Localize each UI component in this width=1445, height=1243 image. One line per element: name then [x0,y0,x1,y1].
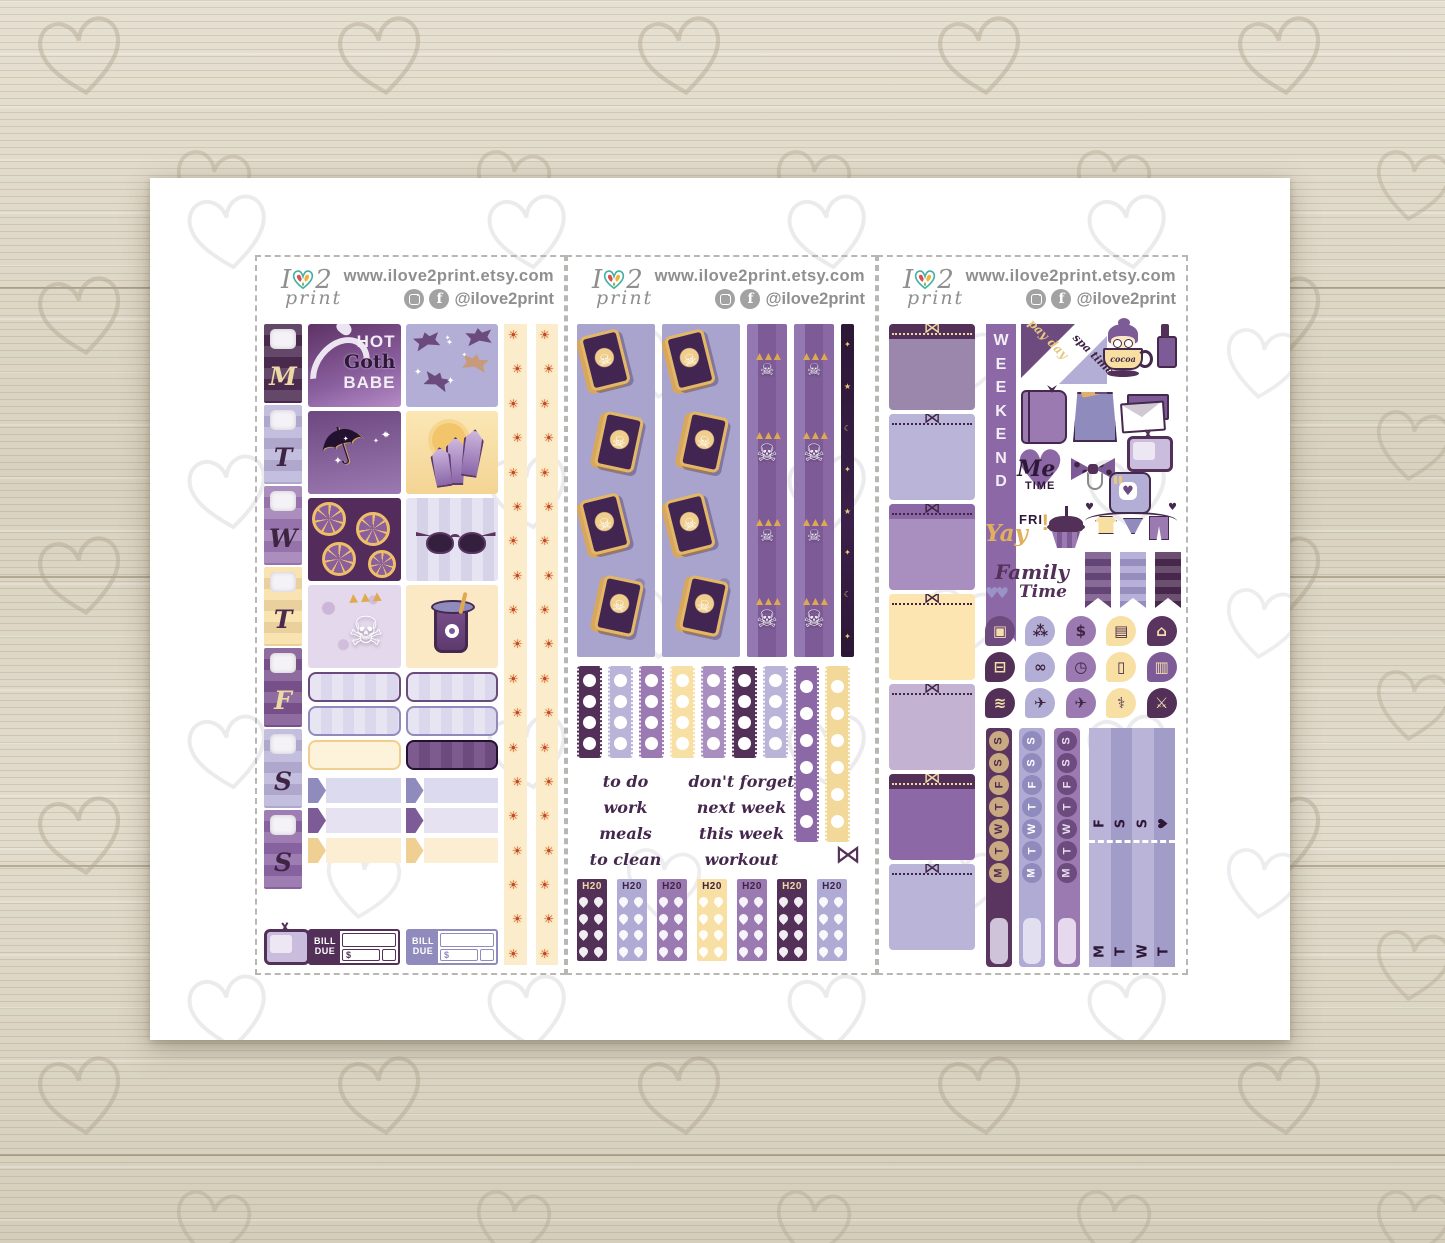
car-icon-glyph: ⊟ [994,658,1007,676]
day-dot: S [1022,753,1042,773]
day-letter: S [274,754,292,808]
week-day-strip-sticker: SSFTWTM [1054,728,1080,967]
skull-planter-item: ▲▲▲☠ [801,429,828,465]
checkbox-hole [800,680,813,693]
sheet-header: I2 print www.ilove2print.etsy.com f @ilo… [257,265,564,323]
sun-icon: ☀ [543,912,554,926]
checkbox-hole [831,788,844,801]
citrus-slice [368,550,396,578]
paw-icon-glyph: ⁂ [1033,622,1048,640]
yay-label: Yay [985,520,1028,547]
bow-icon: ⋈ [924,414,941,427]
flag-body [326,838,401,863]
weekend-letter: N [995,450,1007,468]
checkbox-hole [583,695,596,708]
skull-icon: ☠ [807,362,821,378]
water-drop-icon [592,912,605,925]
sparkle-icon: ✦ [373,436,379,445]
water-drop-icon [617,945,630,958]
sun-icon: ☀ [539,466,550,480]
sun-icon: ☀ [543,500,554,514]
day-letter: T [274,592,293,646]
sun-icon: ☀ [512,500,523,514]
social-handle: @ilove2print [454,290,554,309]
sparkle-icon: ✦ [333,455,342,467]
flag-sticker [308,838,401,863]
word-sticker: next week [674,795,809,820]
me-time-label: TIME [1025,480,1055,492]
hydration-tracker-sticker: H20 [777,879,807,961]
spray-bottle-icon-glyph: ≋ [994,694,1007,712]
checkbox-hole [707,737,720,750]
checkbox-hole [769,737,782,750]
water-drop-icon [817,945,830,958]
checkbox-hole [614,737,627,750]
flag-sticker [406,808,499,833]
day-dot: W [1022,819,1042,839]
checkbox-hole [769,695,782,708]
water-drop-icon [672,928,685,941]
skull-planter-item: ▲▲▲☠ [801,350,828,378]
day-letter: M [1061,868,1073,877]
date-tab [270,734,296,754]
bat-sunglasses-box-sticker [406,498,499,581]
checkbox-hole [738,716,751,729]
bill-field [440,933,494,947]
checklist-strips [577,666,866,761]
flag-sticker [308,808,401,833]
sun-icon: ☀ [512,775,523,789]
clothesline-sticker: ♥ ♥ [1085,502,1177,548]
day-dot: M [1022,863,1042,883]
bow-icon: ⋈ [924,324,941,337]
skull-icon: ☠ [681,350,698,371]
spray-bottle-icon: ≋ [985,688,1015,718]
water-drop-icon [792,896,805,909]
day-letter: T [993,848,1005,855]
girl-in-cocoa-cup-sticker: cocoa [1095,324,1151,380]
tarot-card: ☠ [594,574,645,637]
checklist-strip-sticker [701,666,726,758]
water-drop-icon [577,896,590,909]
skull-planter-item: ▲▲▲☠ [754,350,781,378]
h2o-label: H20 [582,881,602,892]
weekend-letter: W [993,332,1008,350]
trash-icon-glyph: ▯ [1117,658,1125,676]
tarot-card: ☠ [579,328,631,392]
day-dot: T [1022,841,1042,861]
sun-icon: ☀ [512,844,523,858]
week-column: ST [1111,728,1133,967]
sun-washi-strip: ☀☀☀☀☀☀☀☀☀☀☀☀☀☀☀☀☀☀☀ [504,324,527,965]
utensils-icon-glyph: ⚔ [1155,694,1168,712]
water-drop-icon [697,896,710,909]
water-drop-icon [617,912,630,925]
sunglasses-lens [458,532,486,554]
word-sticker: to clean [577,847,674,872]
checklist-strip-sticker [639,666,664,758]
day-letter: T [274,430,293,484]
logo-print-script: print [285,289,344,308]
water-drop-icon [832,896,845,909]
day-letter: F [993,782,1005,789]
sun-icon: ☀ [543,362,554,376]
day-letter: S [993,737,1005,744]
blank-field [990,918,1008,964]
hydration-tracker-sticker: H20 [737,879,767,961]
skull-icon: ☠ [611,432,628,452]
skull-planter-item: ▲▲▲☠ [801,516,828,544]
day-dot: W [989,819,1009,839]
flag-body [326,808,401,833]
tarot-card: ☠ [679,410,730,473]
water-drop-icon [712,912,725,925]
skull-icon: ☠ [803,441,825,465]
flag-stickers [308,778,498,863]
weekend-day-letter: S [1135,819,1150,828]
water-drop-icon [592,896,605,909]
flag-body [326,778,401,803]
flag-tip [406,838,424,863]
half-box-sticker [406,740,499,770]
sun-icon: ☀ [508,947,519,961]
sparkle-icon: ✦ [446,337,453,347]
sun-icon: ☀ [512,637,523,651]
checklist-strip-sticker [608,666,633,758]
checkbox-hole [831,734,844,747]
skull-icon: ☠ [756,607,778,631]
family-time-sticker: Family Time ♥♥ [985,560,1063,608]
checkbox-hole [645,695,658,708]
citrus-slice [322,542,356,576]
ilove2print-logo: I2 print [592,267,655,323]
sparkle-icon: ✦ [461,351,467,359]
water-drop-icon [672,896,685,909]
day-letter: S [1026,759,1038,766]
pennant-flag-sticker [1085,552,1111,608]
weekend-day-letter: S [1114,819,1129,828]
checkbox-hole [738,695,751,708]
water-drop-icon [737,912,750,925]
day-letter: S [1061,759,1073,766]
sun-icon: ☀ [508,534,519,548]
tarot-card: ☠ [664,328,716,392]
sun-icon: ☀ [508,397,519,411]
checklist-strip-sticker [732,666,757,758]
tarot-card: ☠ [594,410,645,473]
tarot-card: ☠ [579,492,631,556]
checkbox-hole [769,674,782,687]
date-cover-sticker: T [264,405,302,484]
water-drop-icon [632,912,645,925]
paw-icon: ⁂ [1025,616,1055,646]
word-sticker: meals [577,821,674,846]
sun-icon: ☀ [508,672,519,686]
heart-icon: ♥ [1085,502,1094,513]
word-sticker: to do [577,769,674,794]
instagram-icon [404,289,424,309]
celestial-washi-strip: ✦★☾✦★✦☾✦ [841,324,854,657]
water-drop-icon [632,928,645,941]
car-icon: ⊟ [985,652,1015,682]
sun-icon: ☀ [539,809,550,823]
star-icon: ★ [844,507,851,516]
checklist-strip-sticker [794,666,819,842]
sun-icon: ☀ [543,775,554,789]
water-drop-icon [832,945,845,958]
water-drop-icon [712,928,725,941]
heart-icon: ♥ [1122,484,1134,499]
bill-due-label: BILLDUE [408,931,438,963]
friyay-sticker: FRI Yay ! [985,512,1047,554]
star-icon: ✦ [844,548,851,557]
airplane-2-icon: ✈ [1066,688,1096,718]
bow-icon: ⋈ [924,684,941,697]
tv-antenna [277,923,293,932]
week-day-strip-sticker: SSFTWTM [1019,728,1045,967]
day-dot: F [989,775,1009,795]
water-drop-icon [752,945,765,958]
water-drop-icon [817,928,830,941]
trash-icon: ▯ [1106,652,1136,682]
flag-tip [406,808,424,833]
sun-icon: ☀ [539,878,550,892]
skull-icon: ☠ [756,441,778,465]
celestial-umbrella-box-sticker: ☂ ✦✦✦✦✦ [308,411,401,494]
half-box-sticker [308,672,401,702]
cupcake-sticker [1047,506,1085,552]
sun-icon: ☀ [539,603,550,617]
dollar-icon-glyph: $ [1076,622,1086,640]
day-dot: T [1057,797,1077,817]
tarot-card: ☠ [664,492,716,556]
day-letter: T [1026,804,1038,811]
icon-sticker-grid: ▣⁂$▤⌂⊟∞◷▯▥≋✈✈⚕⚔ [985,616,1179,718]
flag-tip [308,838,326,863]
sparkle-icon: ✦ [414,367,422,378]
day-letter: S [1061,737,1073,744]
print-area: I2 print www.ilove2print.etsy.com f @ilo… [255,255,1190,975]
time-label: Time [1019,582,1067,602]
utensils-icon: ⚔ [1147,688,1177,718]
family-label: Family [995,560,1069,584]
date-cover-sticker: M [264,324,302,403]
skull-icon: ☠ [696,432,713,452]
checklist-strip-sticker [577,666,602,758]
day-letter: W [993,824,1005,834]
weekday-letter: T [1157,947,1172,956]
sun-icon: ☀ [508,466,519,480]
ilove2print-logo: I2 print [903,267,966,323]
day-dot: M [989,863,1009,883]
bow-icon: ⋈ [924,774,941,787]
logo-print-script: print [596,289,655,308]
date-tab [270,491,296,511]
eyeball-drink-box-sticker [406,585,499,668]
goth-box-text: HOT [343,332,395,352]
blank-field [1023,918,1041,964]
checklist-strip-sticker [670,666,695,758]
social-handle: @ilove2print [765,290,865,309]
heart-icon: ♥ [1168,502,1177,513]
date-cover-sticker: S [264,729,302,808]
skull-icon: ☠ [760,362,774,378]
full-box-sticker: ⋈ [889,414,975,500]
checkbox-hole [707,674,720,687]
bow-sticker: ⋈ [835,840,861,870]
skull-icon: ☠ [596,350,613,371]
skull-planter-washi-strip: ▲▲▲☠▲▲▲☠▲▲▲☠▲▲▲☠ [747,324,787,657]
flag-sticker [308,778,401,803]
stethoscope-icon: ⚕ [1106,688,1136,718]
sun-icon: ☀ [543,431,554,445]
half-box-sticker [308,740,401,770]
grocery-bag-sticker [1073,392,1117,442]
water-drop-icon [712,945,725,958]
checkbox-hole [707,716,720,729]
water-drop-icon [777,928,790,941]
sun-icon: ☀ [539,328,550,342]
star-icon: ✦ [844,340,851,349]
date-tab [270,410,296,430]
date-tab [270,572,296,592]
word-sticker: work [577,795,674,820]
alarm-clock-icon-glyph: ◷ [1074,658,1087,676]
day-letter: M [993,868,1005,877]
day-dot: W [1057,819,1077,839]
day-dot: S [1022,731,1042,751]
day-letter: T [1026,848,1038,855]
h2o-label: H20 [822,881,842,892]
sun-icon: ☀ [539,672,550,686]
sun-icon: ☀ [543,569,554,583]
water-drop-icon [697,912,710,925]
star-icon: ☾ [844,424,851,433]
bow-icon: ⋈ [924,504,941,517]
water-drop-icon [752,928,765,941]
tv-sticker [264,929,310,965]
word-sticker: this week [674,821,809,846]
website-url: www.ilove2print.etsy.com [655,267,865,286]
sun-icon: ☀ [543,844,554,858]
sun-icon: ☀ [512,569,523,583]
social-handle: @ilove2print [1076,290,1176,309]
star-icon: ✦ [844,632,851,641]
day-letter: T [1061,848,1073,855]
checkbox-hole [614,674,627,687]
water-drop-icon [792,912,805,925]
ilove2print-logo: I2 print [281,267,344,323]
water-drop-icon [617,928,630,941]
week-column: FM [1089,728,1111,967]
flag-tip [308,778,326,803]
pennant-flag-stickers [1085,552,1181,608]
hearts-icon: ♥♥ [985,584,1006,602]
weekday-letter: M [1092,945,1107,958]
day-letter: S [993,759,1005,766]
weekend-letter: E [996,426,1007,444]
day-dot: F [1022,775,1042,795]
gas-pump-icon-glyph: ▥ [1155,658,1169,676]
checkbox-hole [645,737,658,750]
pennant-flag-sticker [1120,552,1146,608]
sparkle-icon: ✦ [446,375,455,387]
skull-icon: ☠ [611,596,628,616]
week-day-strip-sticker: SSFTWTM [986,728,1012,967]
checkbox-hole [676,674,689,687]
water-drop-icon [777,912,790,925]
checkbox-hole [800,734,813,747]
weekend-day-letter: F [1092,819,1107,828]
checkbox-hole [800,707,813,720]
sun-icon: ☀ [512,431,523,445]
goth-box-text: BABE [343,373,395,393]
half-box-sticker [406,672,499,702]
day-letter: F [1061,782,1073,789]
weekday-letter: T [1114,947,1129,956]
checkbox-hole [707,695,720,708]
water-drop-icon [657,896,670,909]
full-box-sticker: ⋈ [889,864,975,950]
hydration-tracker-sticker: H20 [617,879,647,961]
logo-print-script: print [907,289,966,308]
sun-icon: ☀ [539,534,550,548]
day-letter: W [1026,824,1038,834]
sun-washi-strip: ☀☀☀☀☀☀☀☀☀☀☀☀☀☀☀☀☀☀☀ [536,324,559,965]
sun-icon: ☀ [539,397,550,411]
planner-book-sticker [1021,390,1067,444]
website-url: www.ilove2print.etsy.com [344,267,554,286]
day-letter: S [274,835,292,889]
day-letter: W [269,511,297,565]
instagram-icon [715,289,735,309]
sunglasses-lens [426,532,454,554]
alarm-clock-icon: ◷ [1066,652,1096,682]
checkbox-hole [645,716,658,729]
star-icon: ✦ [844,465,851,474]
crystals-sun-box-sticker [406,411,499,494]
camera-lens: ♥ [1119,482,1137,500]
water-drop-icon [817,912,830,925]
day-dot: T [989,841,1009,861]
sun-icon: ☀ [512,362,523,376]
product-photo-wood-backdrop: I2 print www.ilove2print.etsy.com f @ilo… [0,0,1445,1243]
airplane-icon-glyph: ✈ [1034,694,1047,712]
checkbox-hole [583,737,596,750]
script-word-stickers: to do don't forget work next week meals … [577,769,809,872]
dashed-divider [1089,840,1175,843]
bill-due-sticker: BILLDUE$ [308,929,400,965]
word-sticker: workout [674,847,809,872]
date-cover-sticker: F [264,648,302,727]
water-drop-icon [697,928,710,941]
me-time-heart-sticker: ♥ Me TIME [1015,450,1071,506]
h2o-label: H20 [782,881,802,892]
dumbbell-icon-glyph: ∞ [1034,658,1047,676]
full-box-sticker: ⋈ [889,594,975,680]
water-drop-icon [632,945,645,958]
instagram-icon [1026,289,1046,309]
flag-sticker [406,778,499,803]
sticker-sheet-weekly-1: I2 print www.ilove2print.etsy.com f @ilo… [255,255,566,975]
day-letter: T [993,804,1005,811]
pennant-flag-sticker [1155,552,1181,608]
hydration-tracker-sticker: H20 [817,879,847,961]
gas-pump-icon: ▥ [1147,652,1177,682]
citrus-slice [312,502,346,536]
bill-field [342,933,396,947]
sun-icon: ☀ [512,912,523,926]
